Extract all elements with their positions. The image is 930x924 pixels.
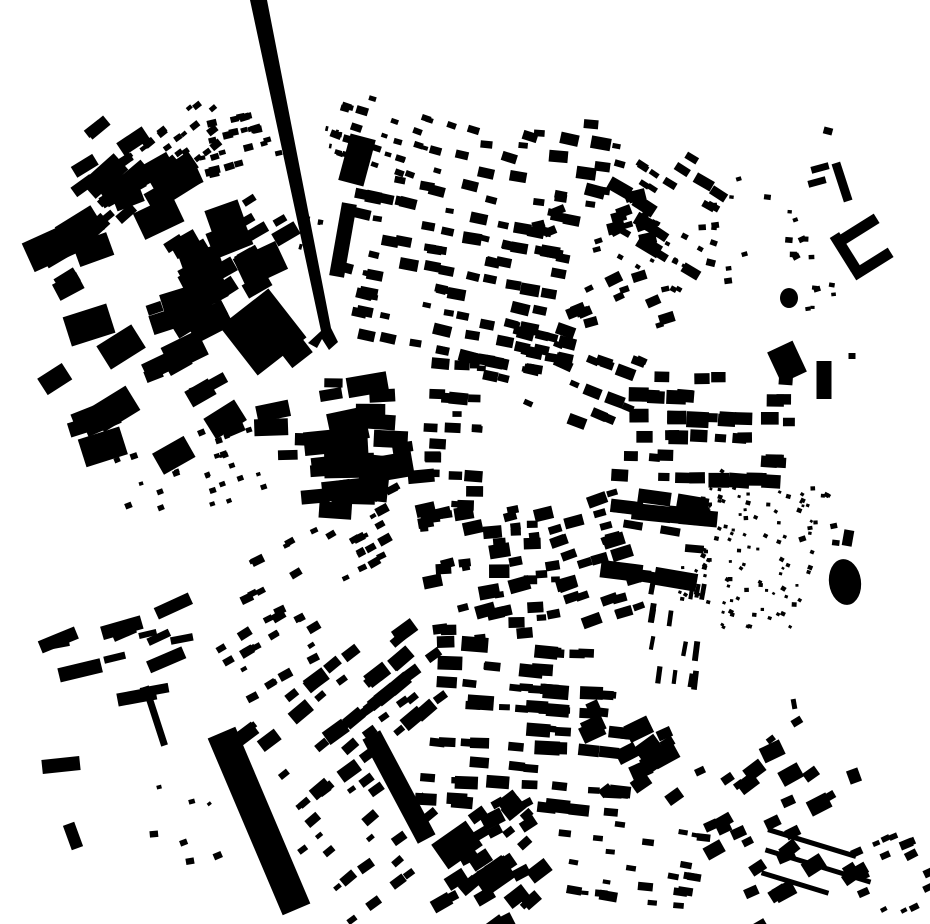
building [458,558,471,567]
east-slab [817,361,832,399]
building [647,900,657,906]
building [254,418,288,436]
building [369,389,395,403]
building [787,210,792,214]
building [732,433,747,444]
building [795,584,798,587]
building [448,392,468,406]
building [761,412,779,425]
building [829,282,835,287]
building [647,391,665,404]
building [658,473,669,481]
building [425,452,441,462]
building [728,473,750,489]
building [609,784,631,798]
building [752,613,757,617]
building [534,740,560,755]
building [717,488,721,492]
building [771,457,786,468]
building [761,608,764,611]
building [489,564,509,578]
building [636,431,652,443]
building [624,451,638,461]
building [730,599,733,602]
building [511,529,521,536]
building [744,588,749,592]
building [149,830,158,837]
building [534,130,545,137]
building [593,835,603,841]
building [549,649,565,658]
building [278,450,298,460]
building [654,371,669,382]
building [484,661,501,671]
building [657,449,673,461]
building [717,499,721,503]
building [718,414,736,427]
building [480,140,493,149]
building [551,576,560,582]
building [581,890,589,895]
building [464,470,483,483]
building [697,833,711,842]
speck-east [849,353,856,359]
building [698,224,706,230]
building [711,372,725,382]
building [812,285,818,290]
building [522,780,538,789]
building [552,781,568,791]
building [516,627,533,639]
building [734,412,752,425]
building [569,650,584,659]
building [555,727,571,737]
building [436,676,457,688]
building [765,589,768,592]
building [439,737,456,747]
building [629,409,648,423]
building [767,394,784,407]
building [451,777,463,784]
building [597,690,614,700]
building [518,142,528,149]
building [667,410,685,423]
building [785,237,793,243]
building [536,570,548,578]
building [437,656,462,671]
building [558,829,571,837]
building [729,560,732,563]
building [712,203,717,207]
building [431,357,450,370]
building [805,306,811,311]
building [694,373,709,384]
building [690,429,708,442]
building [810,486,815,490]
building [479,701,492,709]
building [441,625,457,636]
building [708,558,712,562]
central-block-b [357,454,392,503]
building [726,266,732,271]
building [743,516,748,520]
building [465,701,480,710]
building [451,795,474,809]
building [526,722,551,737]
building [420,526,429,532]
building [540,683,559,695]
building [764,194,771,200]
building [675,472,690,483]
building [444,423,460,434]
building [761,474,781,489]
building [611,469,628,482]
building [783,418,795,427]
building [747,545,751,549]
building [508,761,525,772]
building [681,566,684,569]
building [766,503,770,507]
building [559,707,571,714]
building [831,292,836,296]
building [756,548,759,551]
building [583,119,598,129]
building [665,430,679,440]
building [715,434,727,443]
building [807,526,813,531]
building [454,360,470,370]
building [429,389,445,399]
building [604,808,619,817]
building [832,539,840,546]
building [427,469,439,477]
building [737,549,741,553]
building [537,614,547,621]
building [810,306,814,309]
building [524,575,537,584]
building [808,531,812,535]
building [813,520,817,524]
building [468,394,481,402]
building [466,486,483,497]
building [704,550,708,554]
building [509,684,522,692]
building [821,494,825,498]
building [724,277,732,284]
building [777,521,781,525]
building [809,255,815,260]
building [732,528,735,531]
building [461,636,489,653]
building [594,161,611,173]
building [327,456,347,467]
building [429,438,446,449]
building [472,425,483,433]
building [452,411,461,417]
building [729,195,734,199]
building [318,501,352,519]
building [423,423,437,432]
building [568,803,589,816]
building [508,617,524,628]
building [523,764,538,773]
building [676,389,693,402]
building [185,857,194,865]
building [711,226,717,231]
city-figure-ground-map [0,0,930,924]
building [629,387,649,402]
building [549,150,569,163]
building [324,378,342,387]
building [435,563,451,574]
building [526,700,549,714]
building [462,679,477,688]
building [686,411,709,428]
building [524,538,541,550]
building [533,198,545,206]
building [536,668,550,676]
building [638,882,654,892]
building [437,636,455,648]
building [493,538,506,547]
building [527,602,544,614]
building [588,787,600,794]
northeast-round-blob [780,288,798,308]
building [486,775,510,789]
building [792,602,797,607]
building [461,738,475,747]
building [449,471,463,480]
building [537,801,557,814]
building [746,492,749,495]
building [420,773,435,782]
map-canvas [0,0,930,924]
building [673,902,684,909]
building [689,472,705,483]
building [739,513,742,516]
building [743,508,746,511]
building [301,488,330,505]
building [528,685,543,694]
building [508,742,524,752]
building [723,524,727,528]
building [711,482,716,486]
building [680,597,685,601]
building [483,525,503,539]
building [499,704,510,710]
building [605,849,615,855]
building [578,743,600,757]
building [527,521,538,528]
building [469,756,489,768]
